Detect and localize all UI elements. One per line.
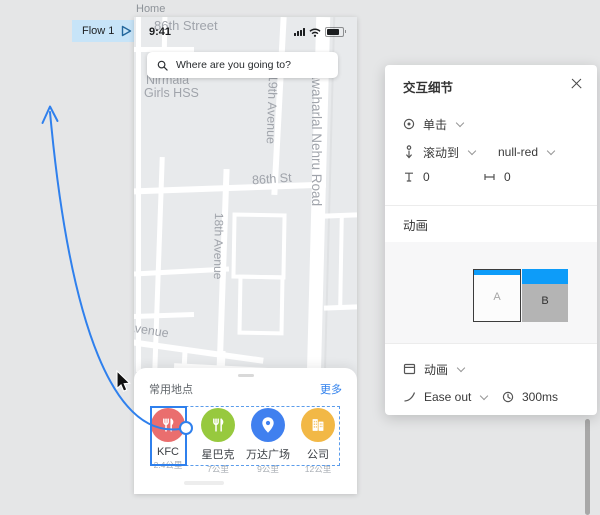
flow-start-chip[interactable]: Flow 1 (72, 20, 140, 42)
target-dropdown[interactable]: null-red (498, 144, 554, 160)
statusbar-icons (294, 27, 344, 37)
chevron-down-icon (457, 363, 465, 371)
more-link[interactable]: 更多 (320, 381, 342, 397)
connection-node[interactable] (179, 421, 193, 435)
battery-icon (325, 27, 344, 37)
map-road (134, 312, 194, 319)
clock-icon (502, 391, 514, 403)
offset-x-value: 0 (504, 170, 511, 184)
animation-type-dropdown[interactable]: 动画 (403, 361, 464, 377)
offset-y-value: 0 (423, 170, 430, 184)
chevron-down-icon (468, 146, 476, 154)
chevron-down-icon (456, 118, 464, 126)
target-label: null-red (498, 145, 538, 159)
offset-y-field[interactable]: 0 (403, 169, 430, 185)
animation-preview: A B (385, 242, 597, 343)
cursor-icon (117, 371, 130, 391)
frame-animation-icon (403, 363, 416, 375)
statusbar-time: 9:41 (149, 26, 171, 38)
search-input[interactable]: Where are you going to? (147, 52, 338, 78)
easing-dropdown[interactable]: Ease out (403, 389, 487, 405)
home-indicator (184, 481, 224, 485)
scroll-to-icon (403, 145, 415, 159)
map-label-19th-avenue: 19th Avenue (264, 75, 280, 145)
ease-curve-icon (403, 391, 416, 403)
close-icon[interactable] (569, 76, 585, 92)
flow-name-label: Flow 1 (82, 25, 114, 37)
wifi-icon (309, 28, 321, 37)
duration-value: 300ms (522, 390, 558, 404)
cellular-signal-icon (294, 28, 305, 36)
vertical-scrollbar[interactable] (585, 419, 590, 515)
sheet-drag-handle[interactable] (238, 374, 254, 377)
click-icon (403, 118, 415, 130)
card-b-label: B (522, 295, 568, 307)
card-a-header (474, 270, 520, 275)
search-query-text: Where are you going to? (176, 59, 291, 71)
chevron-down-icon (480, 391, 488, 399)
horizontal-offset-icon (483, 171, 496, 183)
map-label-18th-avenue: 18th Avenue (211, 213, 226, 280)
interaction-details-panel: 交互细节 单击 滚动到 null-red 0 0 动画 (385, 65, 597, 415)
trigger-dropdown[interactable]: 单击 (403, 116, 463, 132)
sheet-title: 常用地点 (149, 381, 193, 397)
divider (385, 205, 597, 206)
map-label-86th-st: 86th St (252, 171, 293, 188)
play-icon[interactable] (121, 25, 132, 37)
card-b-header (522, 269, 568, 284)
offset-x-field[interactable]: 0 (483, 169, 511, 185)
duration-field[interactable]: 300ms (502, 389, 558, 405)
vertical-offset-icon (403, 171, 415, 183)
map-road (338, 215, 344, 307)
animation-section-title: 动画 (403, 215, 428, 234)
preview-card-a: A (473, 269, 521, 322)
action-dropdown[interactable]: 滚动到 (403, 144, 475, 160)
chevron-down-icon (547, 146, 555, 154)
easing-label: Ease out (424, 390, 471, 404)
preview-card-b: B (522, 269, 568, 322)
phone-frame-home: 86th Street Nirmala Girls HSS 19th Avenu… (134, 17, 357, 494)
divider (385, 343, 597, 344)
card-a-label: A (474, 291, 520, 303)
frame-title-home[interactable]: Home (136, 3, 165, 15)
map-label-girls-hss: Girls HSS (144, 86, 199, 100)
map-block-loop (231, 213, 286, 280)
panel-title: 交互细节 (403, 77, 453, 96)
trigger-label: 单击 (423, 116, 447, 133)
kfc-selection-outline (150, 406, 187, 466)
search-icon (157, 60, 168, 71)
action-label: 滚动到 (423, 144, 459, 161)
map-label-nehru-road: Jawaharlal Nehru Road (309, 65, 324, 206)
arrowhead (43, 107, 58, 124)
animation-type-label: 动画 (424, 361, 448, 378)
map-block-loop (237, 275, 284, 336)
